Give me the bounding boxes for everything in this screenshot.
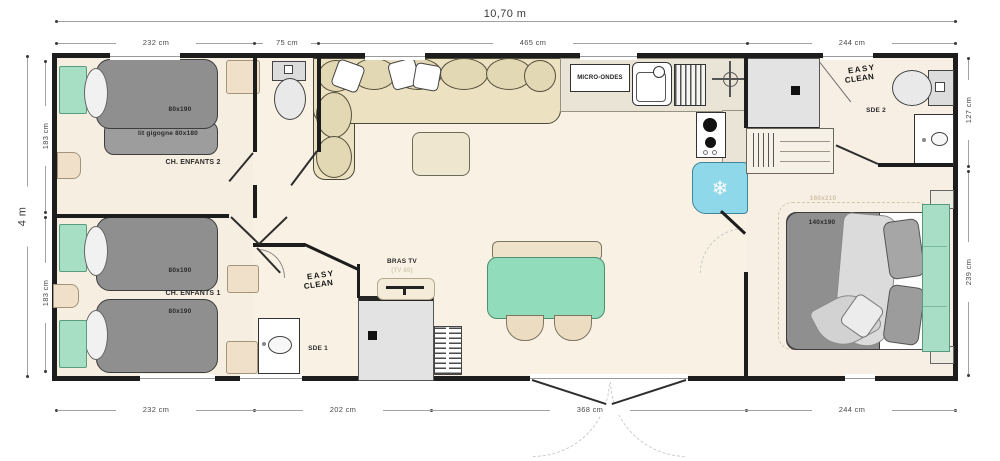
window-sde2 xyxy=(823,52,873,60)
dim-dot xyxy=(55,20,58,23)
window-bedroom2 xyxy=(110,52,180,60)
dim-bottom-1: 232 cm xyxy=(116,405,196,415)
microwave: MICRO-ONDES xyxy=(570,64,630,92)
microwave-label: MICRO-ONDES xyxy=(577,75,623,81)
knob-icon xyxy=(703,150,708,155)
sink-basin-icon xyxy=(931,132,948,146)
room-label-bedroom2: CH. ENFANTS 2 xyxy=(138,159,248,166)
dim-dot xyxy=(746,42,749,45)
dim-dot xyxy=(26,55,29,58)
room-label-sde2: SDE 2 xyxy=(854,107,898,114)
dim-dot xyxy=(44,60,47,63)
wall-sde2-bottom xyxy=(878,163,953,167)
burner-icon xyxy=(703,118,717,132)
pillow xyxy=(84,310,108,360)
dim-top-1: 232 cm xyxy=(116,38,196,48)
flush-button-icon xyxy=(935,82,945,92)
fridge: ❄ xyxy=(692,162,748,214)
dim-overall-width: 10,70 m xyxy=(450,8,560,21)
wall-kitchen-end xyxy=(744,57,748,128)
room-label-sde1: SDE 1 xyxy=(296,345,340,352)
floorplan-canvas: 10,70 m 232 cm 75 cm 465 cm 244 cm 232 c… xyxy=(0,0,1000,461)
nightstand xyxy=(59,66,87,114)
window-sde1 xyxy=(240,374,302,382)
wall-bedroom2-wc xyxy=(253,57,257,152)
cabinet xyxy=(57,152,81,179)
wall-wc-living xyxy=(317,57,321,152)
bed-size-label: 80x190 xyxy=(150,308,210,315)
dim-dot xyxy=(954,42,957,45)
wall-living-master xyxy=(744,272,748,377)
french-door-opening xyxy=(530,374,688,382)
headboard-line xyxy=(923,246,947,247)
headboard xyxy=(922,204,950,352)
cabinet xyxy=(226,341,258,374)
shelf-divider xyxy=(446,327,449,372)
faucet-icon xyxy=(262,342,266,346)
shelf-line xyxy=(780,151,830,152)
hanger-icon xyxy=(763,133,764,167)
toilet-bowl-icon xyxy=(274,78,306,120)
bed-size-label: 140x190 xyxy=(796,219,848,226)
flush-button-icon xyxy=(284,65,293,74)
room-label-bedroom1: CH. ENFANTS 1 xyxy=(138,290,248,297)
bed-80x190 xyxy=(96,59,218,129)
sofa-cushion xyxy=(440,58,488,90)
dim-dot xyxy=(317,42,320,45)
window-master xyxy=(845,374,875,382)
dim-dot xyxy=(967,57,970,60)
dim-dot xyxy=(26,375,29,378)
dim-left-2: 183 cm xyxy=(41,263,51,323)
window-living xyxy=(365,52,425,60)
dim-dot xyxy=(44,211,47,214)
snowflake-icon: ❄ xyxy=(712,176,729,201)
cabinet xyxy=(53,284,79,308)
drainer-icon xyxy=(674,64,706,106)
dim-dot xyxy=(44,216,47,219)
hanger-icon xyxy=(758,133,759,167)
hanger-icon xyxy=(768,133,769,167)
dim-overall-height: 4 m xyxy=(17,187,30,247)
nightstand xyxy=(59,224,87,272)
dim-right-2: 239 cm xyxy=(964,242,974,302)
dim-right-1: 127 cm xyxy=(964,80,974,140)
trundle-label: lit gigogne 80x180 xyxy=(124,130,212,137)
nightstand xyxy=(59,320,87,368)
shower-sde2 xyxy=(746,58,820,132)
bed-size-label: 80x190 xyxy=(150,267,210,274)
dim-dot xyxy=(253,42,256,45)
dim-bottom-2: 202 cm xyxy=(303,405,383,415)
tv-bracket-label: BRAS TV xyxy=(368,258,436,265)
window-kitchen xyxy=(580,52,637,60)
sofa-cushion xyxy=(524,60,556,92)
sink-basin-icon xyxy=(268,336,292,354)
window-bedroom1 xyxy=(140,374,215,382)
dim-dot xyxy=(44,370,47,373)
sofa-cushion xyxy=(316,136,352,178)
bed-80x190 xyxy=(96,217,218,291)
shelf-line xyxy=(780,141,830,142)
hanger-icon xyxy=(753,133,754,167)
shelf-line xyxy=(780,161,830,162)
dim-dot xyxy=(967,374,970,377)
burner-icon xyxy=(705,137,716,148)
dim-top-3: 465 cm xyxy=(493,38,573,48)
dim-left-1: 183 cm xyxy=(41,106,51,166)
sofa-cushion xyxy=(316,92,352,138)
ceiling-light-icon xyxy=(723,72,738,87)
throw-pillow xyxy=(412,62,442,92)
pillow xyxy=(84,68,108,118)
dim-dot xyxy=(954,20,957,23)
cabinet xyxy=(227,265,259,293)
tv-bracket-sublabel: (TV 80) xyxy=(368,268,436,274)
dim-bottom-4: 244 cm xyxy=(812,405,892,415)
dim-top-4: 244 cm xyxy=(812,38,892,48)
faucet-icon xyxy=(653,66,665,78)
tv-bracket-icon xyxy=(403,289,406,295)
wall-sde1-shower xyxy=(357,264,360,298)
dim-line-overall-width xyxy=(57,21,957,22)
coffee-table xyxy=(412,132,470,176)
clearance-size-label: 160x210 xyxy=(792,195,854,202)
shower-drain-icon xyxy=(791,86,800,95)
dim-dot xyxy=(967,170,970,173)
dim-top-2: 75 cm xyxy=(263,38,311,48)
faucet-icon xyxy=(922,138,926,142)
toilet-bowl-icon xyxy=(892,70,932,106)
bed-size-label: 80x190 xyxy=(150,106,210,113)
wall-bedroom2-hall xyxy=(253,185,257,218)
wall-bedroom-divider xyxy=(57,214,229,218)
dim-bottom-3: 368 cm xyxy=(550,405,630,415)
headboard-line xyxy=(923,306,947,307)
knob-icon xyxy=(712,150,717,155)
dim-dot xyxy=(55,42,58,45)
hanger-icon xyxy=(773,133,774,167)
tv-cabinet xyxy=(377,278,435,300)
dim-dot xyxy=(967,165,970,168)
shower-drain-icon xyxy=(368,331,377,340)
dining-table xyxy=(487,257,605,319)
pillow xyxy=(84,226,108,276)
